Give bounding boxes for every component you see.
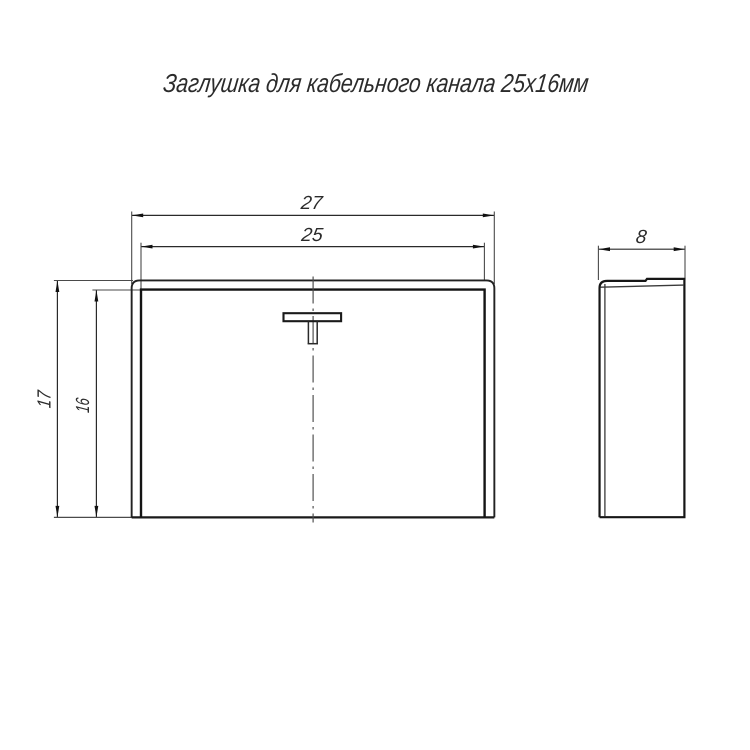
- svg-text:27: 27: [299, 193, 325, 214]
- svg-text:16: 16: [73, 397, 94, 414]
- svg-text:25: 25: [299, 225, 324, 246]
- svg-text:Заглушка для кабельного канала: Заглушка для кабельного канала 25х16мм: [162, 68, 591, 98]
